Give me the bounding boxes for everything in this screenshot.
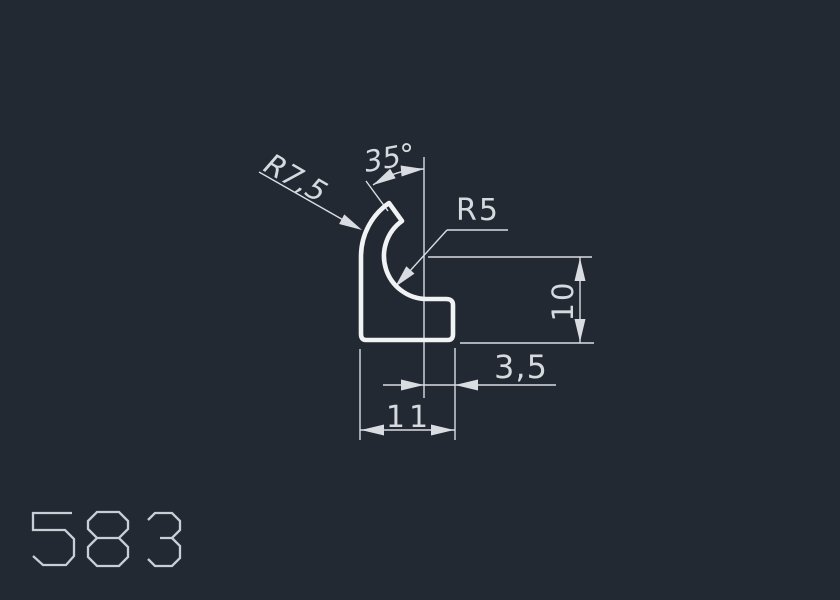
lug-width-arrow-right-icon (401, 380, 424, 391)
part-number-glyph (88, 512, 128, 566)
dimension-inner-radius: R5 (391, 193, 508, 291)
height-arrow-down-icon (575, 319, 586, 342)
height-arrow-up-icon (575, 258, 586, 281)
dimension-tip-angle: 35° (361, 136, 424, 189)
inner-radius-label: R5 (456, 193, 500, 228)
lug-width-arrow-left-icon (455, 380, 478, 391)
width-arrow-right-icon (431, 425, 454, 436)
outer-radius-arrow-icon (339, 214, 364, 235)
part-number-glyph (33, 513, 74, 565)
dimension-outer-radius: R7,5 (259, 147, 365, 235)
dimension-lug-width: 3,5 (383, 348, 556, 391)
dimension-overall-width: 11 (360, 348, 455, 440)
lug-width-label: 3,5 (494, 348, 548, 386)
overall-width-label: 11 (386, 400, 432, 435)
outer-radius-label: R7,5 (259, 147, 333, 210)
cad-drawing-canvas: 35° R7,5 R5 10 3,5 (0, 0, 840, 600)
height-label: 10 (546, 281, 580, 322)
part-number-glyphs (33, 512, 180, 566)
width-arrow-left-icon (361, 425, 384, 436)
profile-drawing: 35° R7,5 R5 10 3,5 (0, 0, 840, 600)
part-number-glyph (148, 513, 180, 566)
